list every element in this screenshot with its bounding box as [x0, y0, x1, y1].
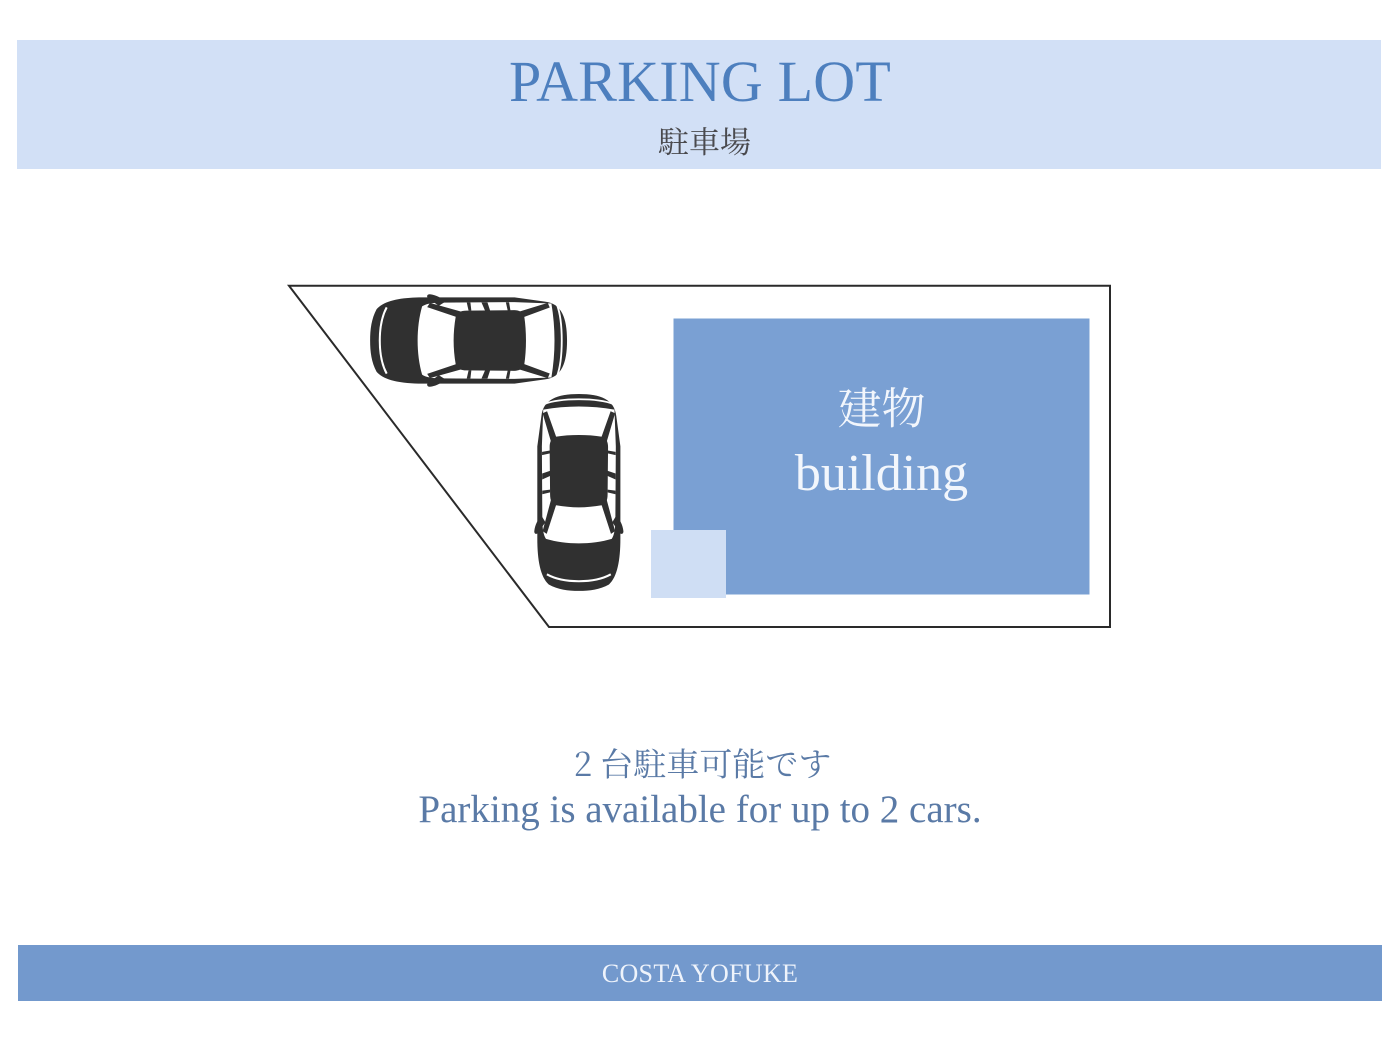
svg-text:building: building	[795, 445, 968, 502]
